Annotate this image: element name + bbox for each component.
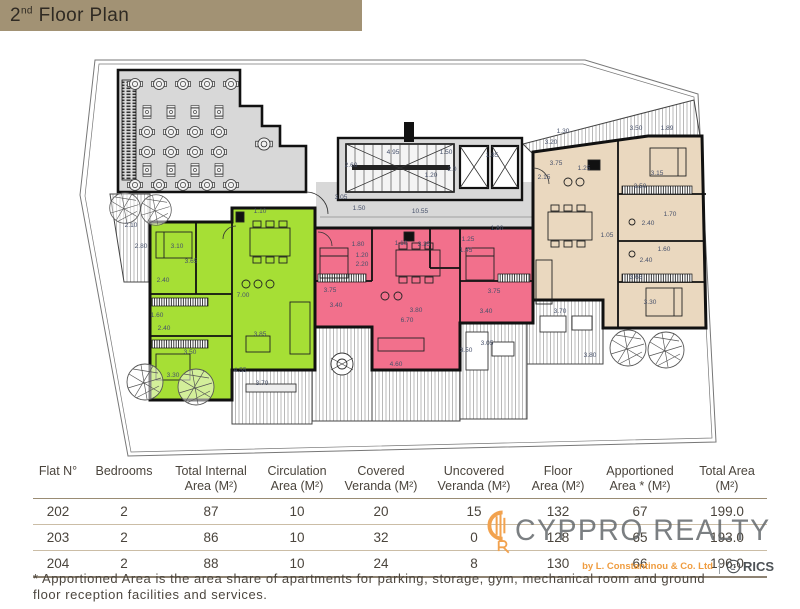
dimension-label: 3.50	[634, 183, 647, 190]
column-header: UncoveredVeranda (M²)	[425, 462, 523, 499]
title-bar: 2nd Floor Plan	[0, 0, 362, 31]
dimension-label: 1.20	[425, 172, 438, 179]
page: 2nd Floor Plan	[0, 0, 800, 609]
table-cell: 2	[83, 525, 165, 551]
table-cell: 203	[33, 525, 83, 551]
dimension-label: 3.65	[630, 274, 643, 281]
dimension-label: 1.50	[353, 205, 366, 212]
dimension-label: 3.85	[254, 331, 267, 338]
wardrobe	[498, 274, 530, 282]
column-header: Total Area(M²)	[687, 462, 767, 499]
column-header: FloorArea (M²)	[523, 462, 593, 499]
dimension-label: 2.60	[345, 162, 358, 169]
dimension-label: 1.05	[601, 232, 614, 239]
cyppro-logo-icon	[484, 503, 515, 559]
dimension-label: 3.70	[554, 308, 567, 315]
dimension-label: 3.80	[584, 352, 597, 359]
dimension-label: 4.55	[234, 367, 247, 374]
footnote: * Apportioned Area is the area share of …	[33, 571, 778, 604]
dimension-label: 3.20	[545, 139, 558, 146]
dimension-label: 3.10	[171, 243, 184, 250]
dimension-label: 1.50	[440, 149, 453, 156]
dimension-label: 1.30	[557, 128, 570, 135]
table-cell: 10	[257, 525, 337, 551]
table-cell: 202	[33, 499, 83, 525]
column-header: Total InternalArea (M²)	[165, 462, 257, 499]
dimension-label: 1.85	[486, 152, 499, 159]
dimension-label: 4.95	[387, 149, 400, 156]
dimension-label: 3.50	[460, 347, 473, 354]
dimension-label: 7.00	[237, 292, 250, 299]
column-header: ApportionedArea * (M²)	[593, 462, 687, 499]
wardrobe	[152, 340, 208, 348]
dimension-label: 1.10	[254, 208, 267, 215]
dimension-label: 3.75	[488, 288, 501, 295]
dimension-label: 1.10	[395, 240, 408, 247]
dimension-label: 3.30	[644, 299, 657, 306]
table-header: Flat N°BedroomsTotal InternalArea (M²)Ci…	[33, 462, 767, 499]
dimension-label: 2.40	[157, 277, 170, 284]
watermark-brand: CYPPRO REALTY	[515, 514, 771, 548]
dimension-label: 1.25	[462, 236, 475, 243]
floor-plan: 3.051.5010.554.952.601.501.852.01.201.30…	[0, 36, 800, 460]
dimension-label: 1.89	[661, 125, 674, 132]
dimension-label: 1.70	[664, 211, 677, 218]
dimension-label: 4.60	[390, 361, 403, 368]
table-cell: 87	[165, 499, 257, 525]
watermark-byline: by L. Constantinou & Co. Ltd	[582, 561, 713, 572]
dimension-label: 2.40	[642, 220, 655, 227]
dimension-label: 1.80	[352, 241, 365, 248]
dimension-label: 3.05	[481, 340, 494, 347]
table-cell: 20	[337, 499, 425, 525]
wardrobe	[152, 298, 208, 306]
column-header: CoveredVeranda (M²)	[337, 462, 425, 499]
column-header: Flat N°	[33, 462, 83, 499]
rics-lion-icon	[726, 559, 741, 574]
dimension-label: 3.40	[330, 302, 343, 309]
veranda-203	[372, 370, 460, 421]
dimension-label: 10.55	[412, 208, 429, 215]
dimension-label: 2.10	[125, 222, 138, 229]
dimension-label: 1.20	[356, 252, 369, 259]
dimension-label: 1.60	[151, 312, 164, 319]
watermark: CYPPRO REALTY by L. Constantinou & Co. L…	[484, 503, 784, 574]
table-cell: 86	[165, 525, 257, 551]
dimension-label: 3.80	[410, 307, 423, 314]
dimension-label: 3.75	[324, 287, 337, 294]
dimension-label: 2.40	[158, 325, 171, 332]
veranda-202	[232, 370, 312, 424]
dimension-label: 3.40	[480, 308, 493, 315]
dimension-label: 3.15	[651, 170, 664, 177]
dimension-label: 1.60	[658, 246, 671, 253]
rics-badge: RICS	[726, 559, 774, 574]
dimension-label: 1.80	[491, 225, 504, 232]
column-header: Bedrooms	[83, 462, 165, 499]
dimension-label: 3.50	[630, 125, 643, 132]
dimension-label: 2.0	[447, 166, 456, 173]
table-cell: 32	[337, 525, 425, 551]
page-title: 2nd Floor Plan	[10, 5, 129, 27]
dimension-label: 3.30	[167, 372, 180, 379]
dimension-label: 2.15	[538, 174, 551, 181]
table-cell: 10	[257, 499, 337, 525]
staircase	[346, 144, 454, 192]
dimension-label: 2.40	[640, 257, 653, 264]
dimension-label: 6.70	[401, 317, 414, 324]
bar-counter	[122, 80, 136, 180]
dimension-label: 2.80	[135, 243, 148, 250]
dimension-label: 3.05	[335, 194, 348, 201]
dimension-label: 3.75	[550, 160, 563, 167]
column-header: CirculationArea (M²)	[257, 462, 337, 499]
divider	[719, 560, 720, 574]
dimension-label: 1.25	[578, 165, 591, 172]
wardrobe	[622, 186, 692, 194]
dimension-label: 3.70	[256, 380, 269, 387]
dimension-label: 3.65	[185, 258, 198, 265]
dimension-label: 2.20	[356, 261, 369, 268]
wall-stub	[404, 122, 414, 142]
dimension-label: 3.50	[184, 349, 197, 356]
table-cell: 2	[83, 499, 165, 525]
dimension-label: 1.45	[460, 247, 473, 254]
dimension-label: 3.35	[418, 241, 431, 248]
